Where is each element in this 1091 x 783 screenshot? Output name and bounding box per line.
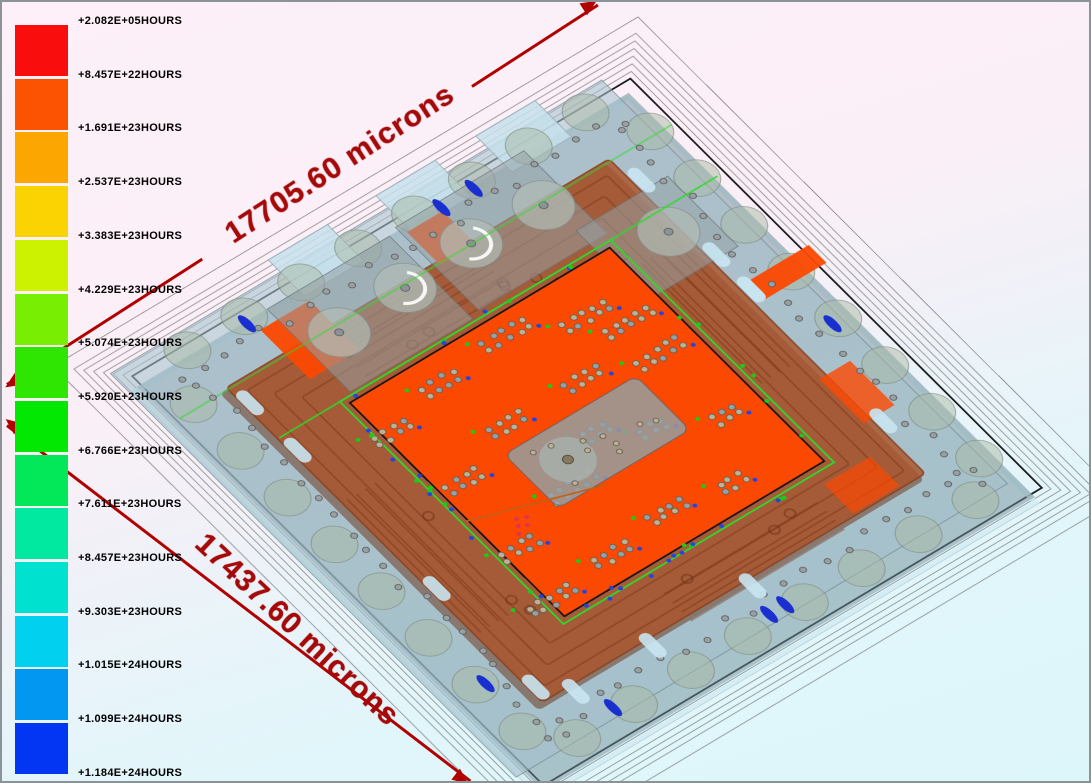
board-plane [131,77,1043,783]
cad-window: 17705.60 microns 17437.60 microns +2.082… [0,0,1091,783]
viewport-3d[interactable] [2,2,1089,781]
